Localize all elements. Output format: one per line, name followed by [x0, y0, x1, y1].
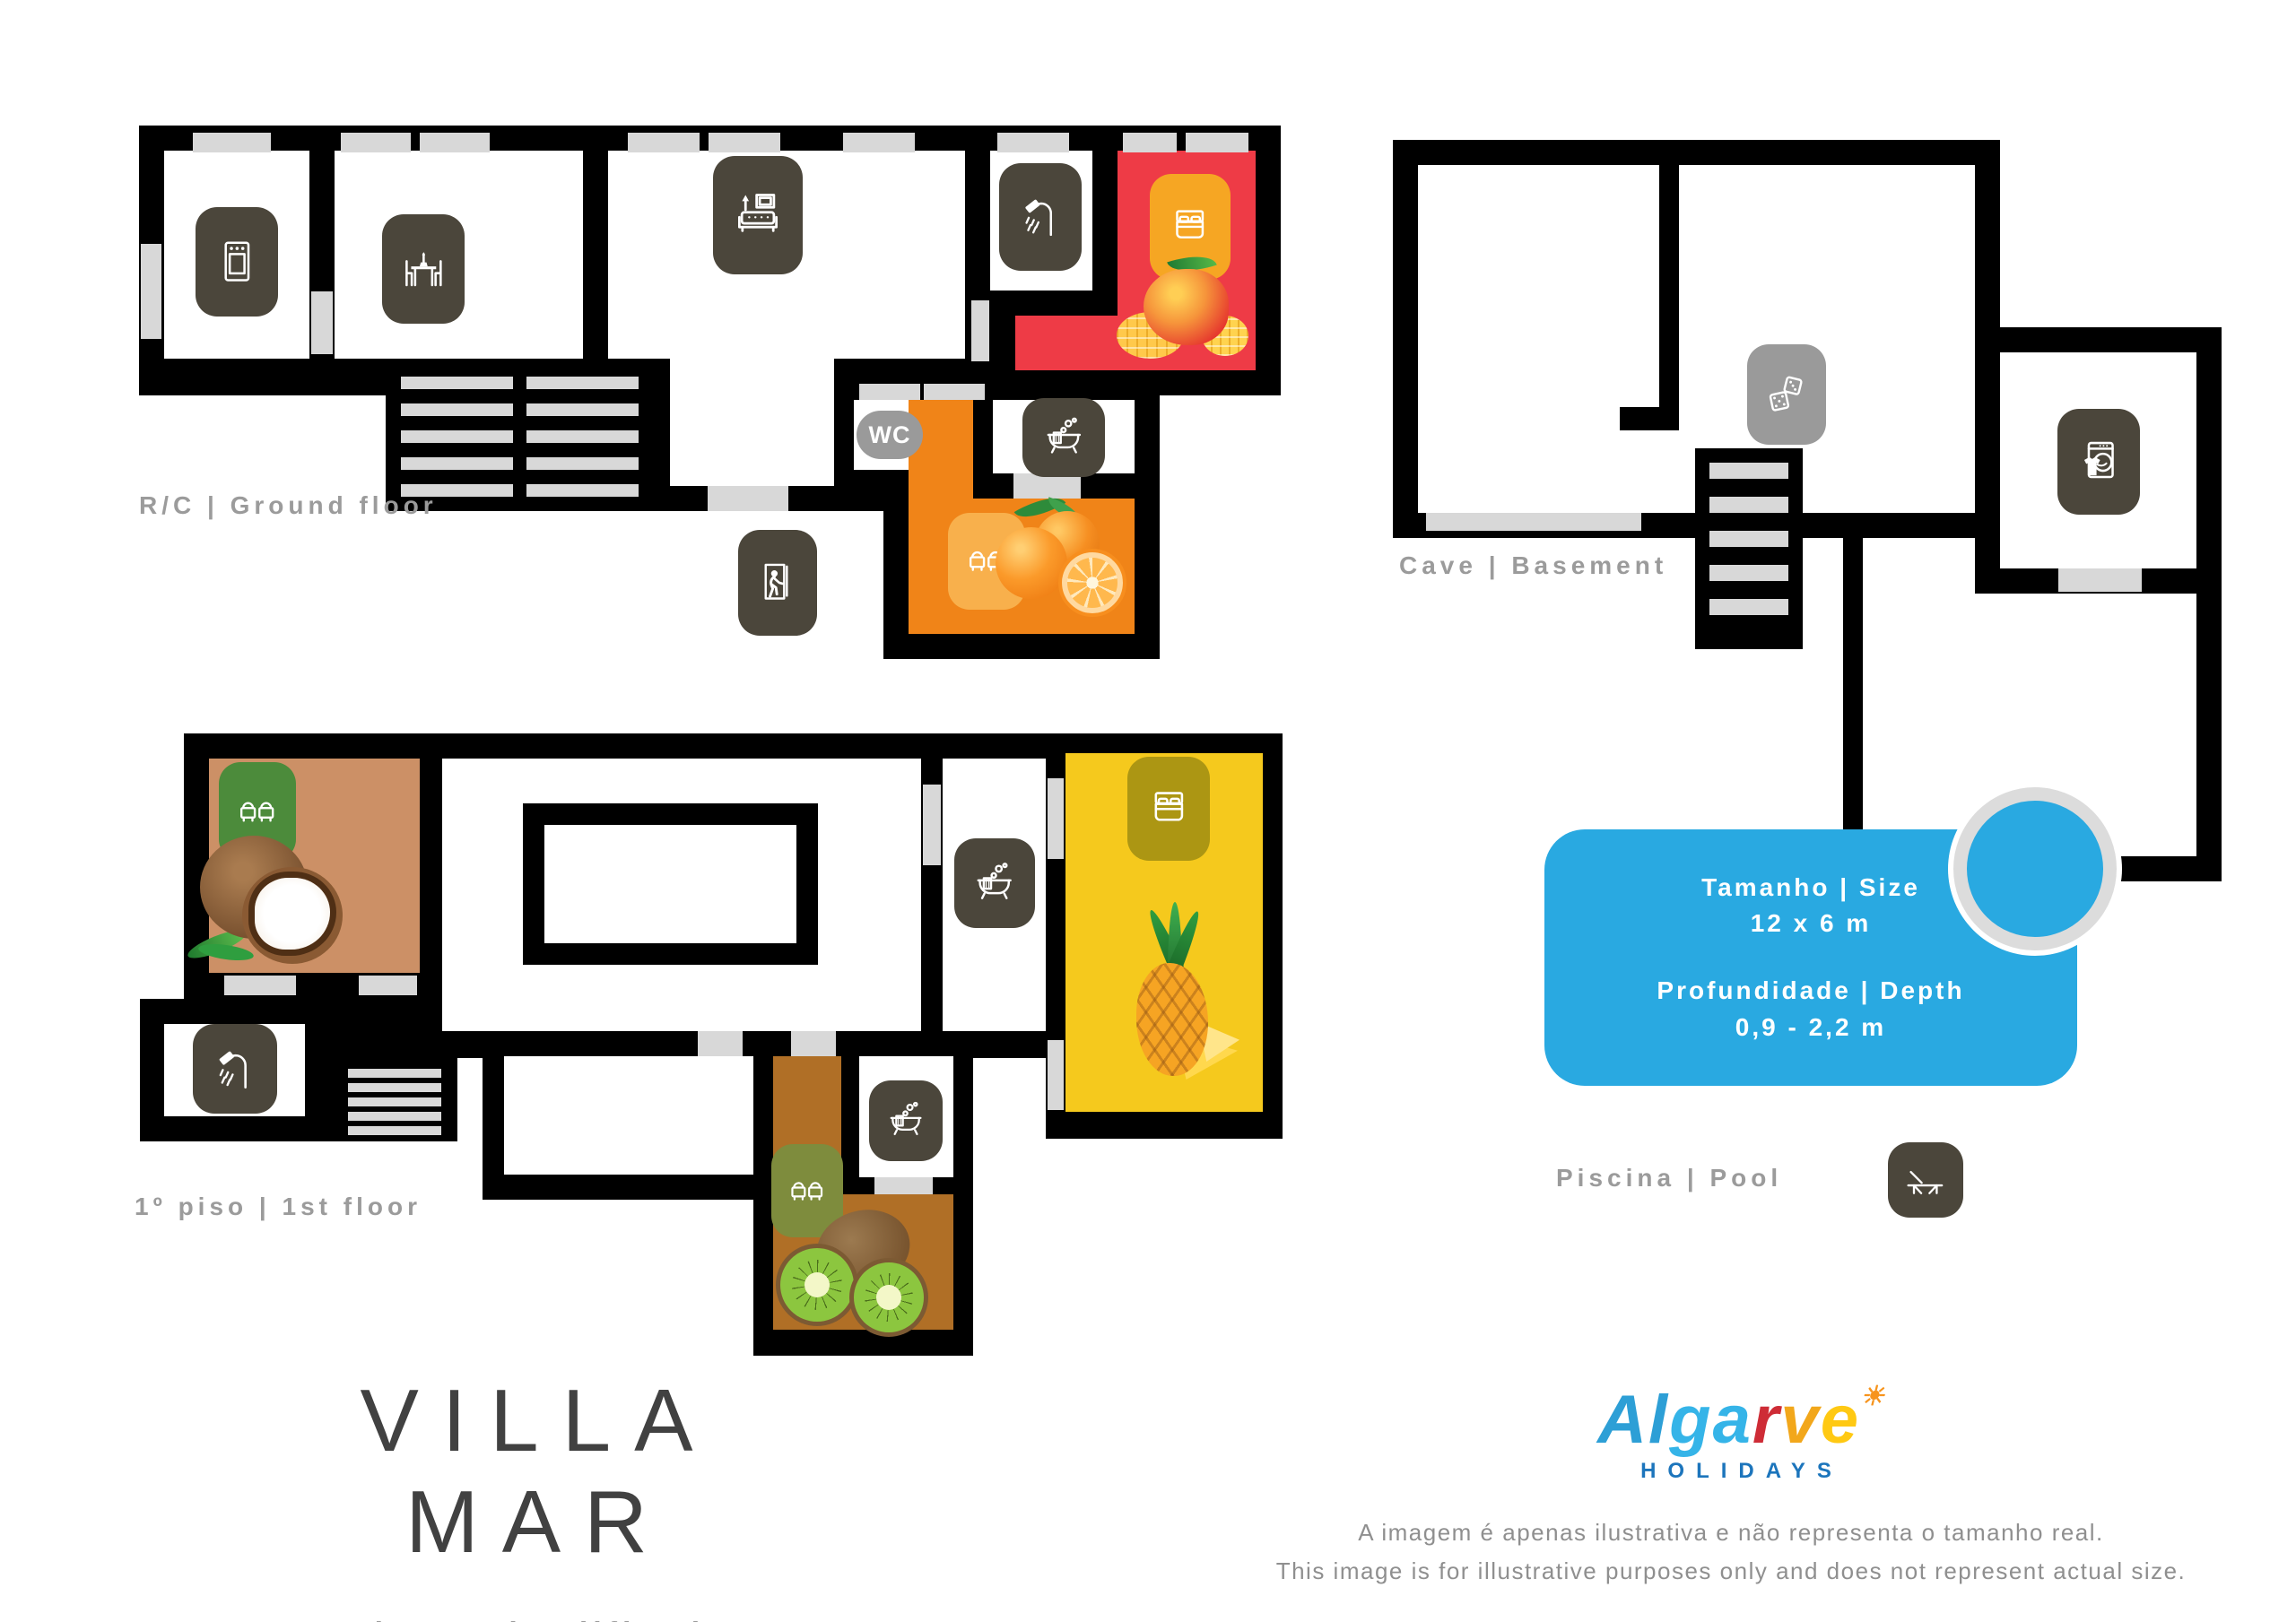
window: [1048, 778, 1064, 859]
deck-slat: [526, 377, 639, 389]
coconut-image: [193, 836, 350, 975]
brand-logo: Algarve☀ HOLIDAYS: [1455, 1381, 2029, 1484]
jacuzzi-circle: [1953, 787, 2117, 950]
window: [1426, 513, 1641, 531]
kitchen-badge: [196, 207, 278, 317]
sun-lounger-icon: [1900, 1155, 1950, 1204]
room-bedroom-red-ext: [1015, 316, 1118, 370]
partition-wall: [1620, 407, 1679, 430]
double-bed-icon: [1163, 192, 1216, 262]
bathtub-badge-gf: [1022, 398, 1105, 477]
deck-slat: [401, 430, 513, 443]
bathtub-icon: [968, 854, 1021, 913]
shower-badge-1f: [193, 1024, 277, 1114]
window: [420, 133, 490, 152]
window: [359, 976, 417, 995]
stairs-step: [1709, 463, 1788, 479]
subtitle: Planta simplificada Simplified blueprint: [215, 1610, 861, 1622]
kiwi-slice: [776, 1244, 858, 1326]
bathtub-icon: [882, 1094, 930, 1147]
logo-subtext: HOLIDAYS: [1455, 1459, 2029, 1484]
orange-whole: [996, 527, 1067, 599]
coconut-flesh: [255, 878, 330, 950]
logo-letter: a: [1713, 1382, 1752, 1458]
pineapple-body: [1136, 963, 1208, 1076]
dice-icon: [1761, 361, 1813, 428]
kiwi-core: [876, 1285, 901, 1310]
orange-slice: [1058, 549, 1126, 617]
bathtub-badge-2f: [869, 1080, 943, 1161]
twin-beds-icon: [232, 779, 283, 845]
shower-icon: [207, 1039, 263, 1098]
room-small: [504, 1056, 753, 1175]
coconut-leaf: [197, 941, 255, 963]
logo-letter: A: [1597, 1382, 1648, 1458]
stairs-step: [1709, 565, 1788, 581]
stairs-step: [348, 1083, 441, 1092]
kiwi-image: [767, 1206, 955, 1340]
stairs-step: [1709, 531, 1788, 547]
title-block: VILLA MAR Planta simplificada Simplified…: [215, 1370, 861, 1622]
shower-badge-gf: [999, 163, 1082, 271]
window: [311, 291, 333, 354]
bathtub-icon: [1037, 412, 1091, 464]
mango-image: [1117, 260, 1251, 368]
door-opening: [874, 1177, 933, 1194]
deck-slat: [526, 484, 639, 497]
laundry-badge: [2057, 409, 2140, 515]
window: [224, 976, 296, 995]
living-badge: [713, 156, 803, 274]
double-bed-icon: [1142, 775, 1196, 844]
subtitle-pt: Planta simplificada: [215, 1610, 861, 1622]
sofa-tv-icon: [728, 176, 787, 254]
lounger-badge: [1888, 1142, 1963, 1218]
window: [1048, 1040, 1064, 1110]
bathtub-badge-1f: [954, 838, 1035, 928]
sun-icon: ☀: [1860, 1382, 1886, 1411]
window: [2058, 568, 2142, 592]
window: [193, 133, 271, 152]
kiwi-slice: [849, 1258, 928, 1337]
window: [859, 384, 920, 400]
basement-label: Cave | Basement: [1399, 551, 1667, 580]
games-badge: [1747, 344, 1826, 445]
window: [843, 133, 915, 152]
window: [1186, 133, 1248, 152]
window: [628, 133, 700, 152]
wc-badge: WC: [857, 411, 923, 459]
first-floor-label: 1º piso | 1st floor: [135, 1193, 422, 1221]
villa-title: VILLA MAR: [215, 1370, 861, 1573]
deck-slat: [401, 377, 513, 389]
mango-body: [1144, 269, 1229, 345]
door-opening: [698, 1031, 743, 1056]
deck-slat: [401, 403, 513, 416]
pool-label: Piscina | Pool: [1556, 1164, 1782, 1193]
logo-letter: e: [1821, 1382, 1860, 1458]
logo-letter: v: [1780, 1382, 1820, 1458]
window: [924, 384, 985, 400]
disclaimer-en: This image is for illustrative purposes …: [1202, 1552, 2260, 1591]
blueprint-canvas: WC R/C | Ground floor: [0, 0, 2296, 1622]
coconut-half: [242, 867, 343, 964]
entrance-icon: [752, 548, 804, 618]
window: [1123, 133, 1177, 152]
dining-table-icon: [396, 233, 451, 306]
stairs-step: [348, 1097, 441, 1106]
partition-wall: [1659, 165, 1679, 430]
stairs-step: [1709, 599, 1788, 615]
shower-icon: [1013, 181, 1068, 252]
window: [709, 133, 780, 152]
stairs-step: [1709, 497, 1788, 513]
logo-letter: g: [1669, 1382, 1712, 1458]
logo-wordmark: Algarve☀: [1455, 1381, 2029, 1459]
disclaimer: A imagem é apenas ilustrativa e não repr…: [1202, 1514, 2260, 1591]
washing-machine-icon: [2072, 427, 2126, 497]
ground-floor-label: R/C | Ground floor: [139, 491, 438, 520]
double-bed-badge-yellow: [1127, 757, 1210, 861]
pool-size-value: 12 x 6 m: [1751, 906, 1872, 942]
pool-size-label: Tamanho | Size: [1701, 870, 1920, 906]
deck-slat: [401, 457, 513, 470]
pool-depth-value: 0,9 - 2,2 m: [1735, 1010, 1886, 1046]
pineapple-image: [1105, 907, 1239, 1082]
deck-slat: [526, 430, 639, 443]
window: [997, 133, 1069, 152]
oranges-image: [979, 502, 1123, 614]
logo-letter: r: [1752, 1382, 1781, 1458]
stairs-step: [348, 1069, 441, 1078]
oven-icon: [210, 226, 265, 299]
window: [923, 785, 941, 865]
logo-letter: l: [1648, 1382, 1669, 1458]
deck-slat: [526, 457, 639, 470]
dining-badge: [382, 214, 465, 324]
stairwell-void: [544, 825, 796, 943]
door-opening: [1013, 473, 1081, 499]
kiwi-core: [804, 1272, 830, 1297]
wall: [2196, 568, 2222, 881]
window: [971, 300, 989, 361]
wc-label: WC: [869, 421, 911, 449]
disclaimer-pt: A imagem é apenas ilustrativa e não repr…: [1202, 1514, 2260, 1552]
window: [341, 133, 411, 152]
hallway: [670, 359, 834, 486]
entrance-badge: [738, 530, 817, 636]
pool-depth-label: Profundidade | Depth: [1657, 973, 1964, 1010]
wall: [973, 400, 993, 499]
door-opening: [791, 1031, 836, 1056]
window: [141, 244, 161, 339]
door-opening: [708, 486, 788, 511]
stairs-step: [348, 1126, 441, 1135]
stairs-step: [348, 1112, 441, 1121]
wall: [1843, 513, 1863, 881]
deck-slat: [526, 403, 639, 416]
